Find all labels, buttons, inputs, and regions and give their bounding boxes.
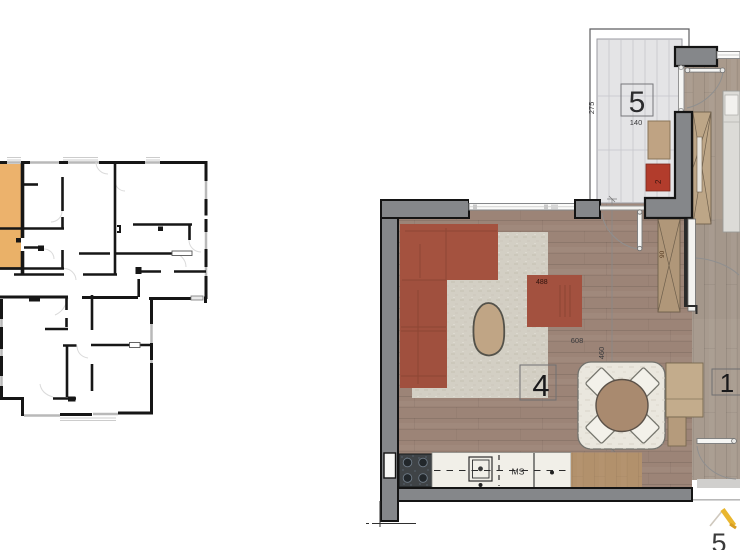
svg-text:4: 4 [532, 368, 549, 403]
svg-text:460: 460 [597, 347, 606, 360]
svg-text:1: 1 [720, 368, 734, 398]
svg-text:90: 90 [659, 250, 666, 258]
svg-text:MS: MS [512, 467, 525, 477]
svg-text:608: 608 [571, 336, 584, 345]
svg-text:2: 2 [654, 179, 663, 184]
svg-text:5: 5 [711, 528, 726, 550]
svg-text:5: 5 [629, 86, 646, 119]
svg-text:275: 275 [587, 102, 596, 115]
svg-text:488: 488 [536, 279, 548, 286]
svg-text:140: 140 [630, 118, 643, 127]
